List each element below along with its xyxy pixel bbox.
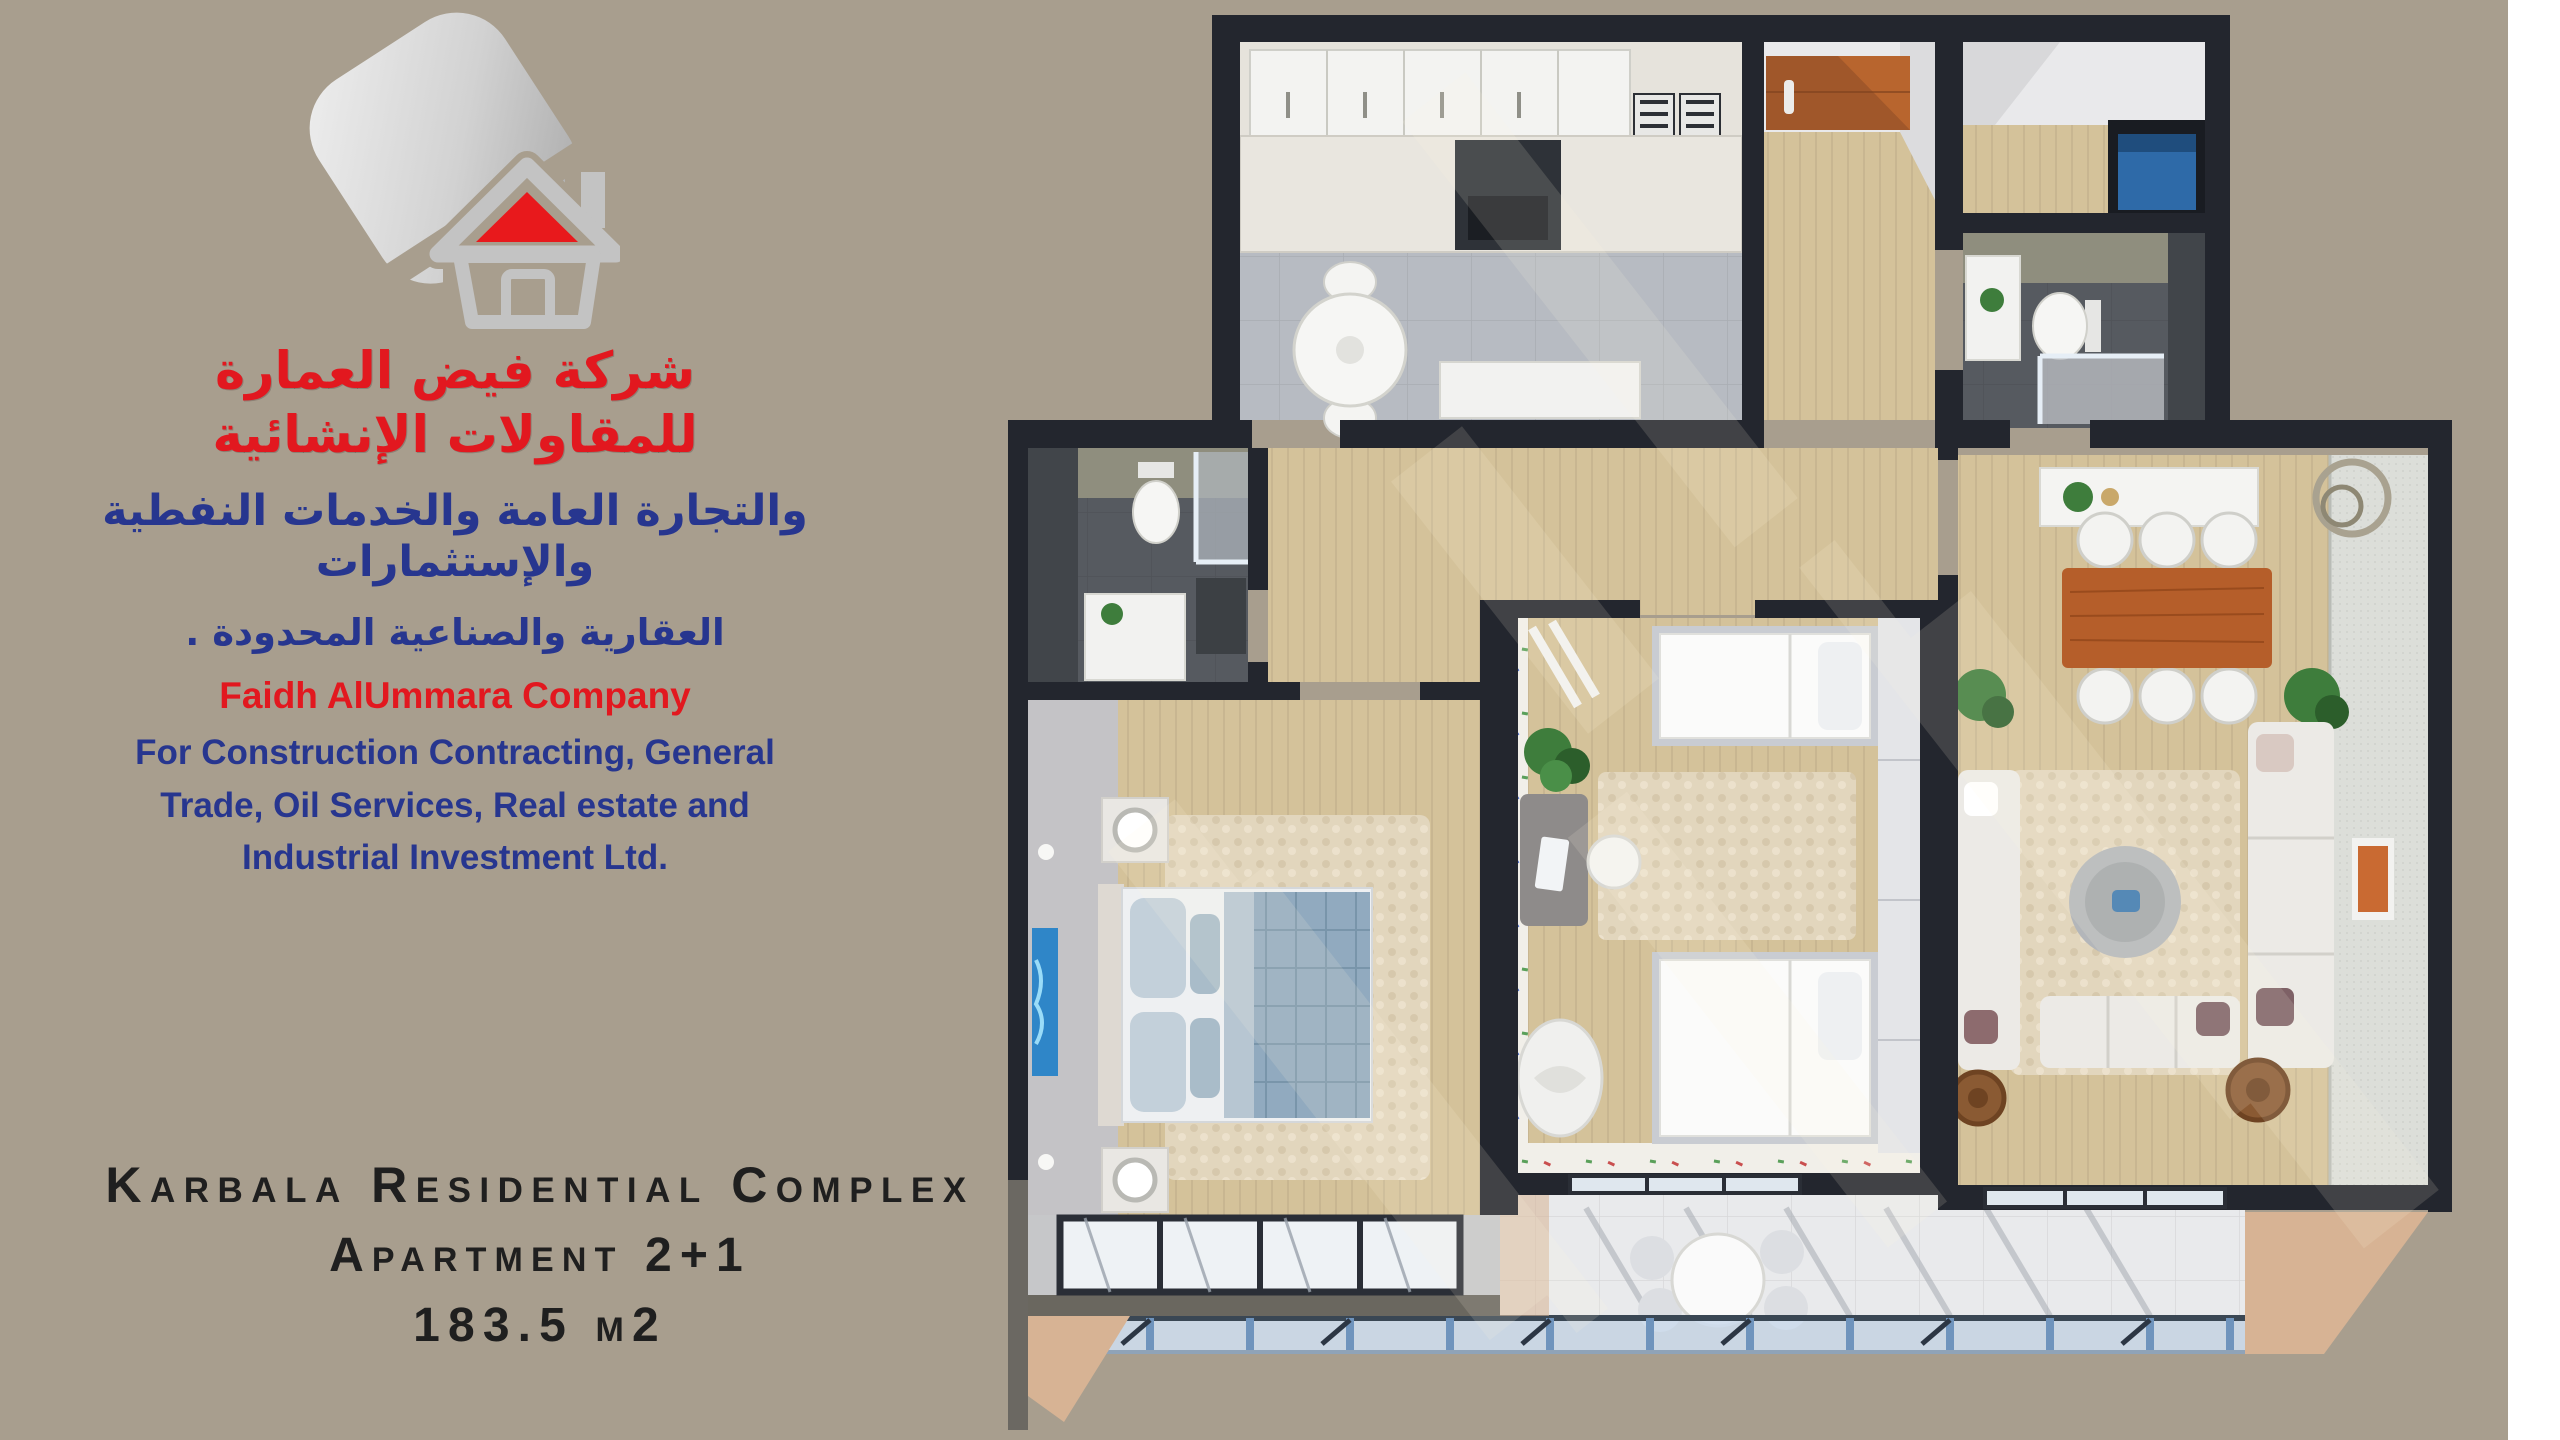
project-area: 183.5 m2 (55, 1302, 1025, 1350)
living-room-windows (1985, 1189, 2225, 1207)
toilet (2033, 293, 2101, 359)
image-edge-strip (2508, 0, 2560, 1440)
company-desc-line2: Trade, Oil Services, Real estate and (100, 780, 810, 833)
project-title: Karbala Residential Complex (55, 1160, 1025, 1210)
company-name-arabic: شركة فيض العمارة للمقاولات الإنشائية (100, 340, 810, 468)
kids-room-windows (1570, 1176, 1800, 1193)
company-name-english: Faidh AlUmmara Company (100, 675, 810, 717)
room-main-bathroom (1028, 448, 1248, 682)
wall-sconce (1038, 844, 1054, 860)
project-subtitle: Apartment 2+1 (55, 1232, 1025, 1280)
room-entry-hall (1764, 42, 1935, 420)
company-activity-arabic-2: العقارية والصناعية المحدودة . (100, 611, 810, 655)
company-text-block: شركة فيض العمارة للمقاولات الإنشائية وال… (100, 340, 810, 885)
dining-set (2062, 513, 2272, 723)
company-logo (280, 2, 620, 332)
project-title-block: Karbala Residential Complex Apartment 2+… (55, 1160, 1025, 1350)
shower (2040, 356, 2164, 424)
bath-mat (1196, 578, 1246, 654)
room-storage-closet (1963, 42, 2205, 213)
leaning-art (2352, 838, 2394, 920)
master-bedroom-windows (1060, 1218, 1460, 1292)
nightstand-bottom (1102, 1148, 1168, 1212)
dining-table (2062, 568, 2272, 668)
company-desc-line3: Industrial Investment Ltd. (100, 832, 810, 885)
company-desc-line1: For Construction Contracting, General (100, 727, 810, 780)
vanity (1085, 594, 1185, 680)
faidh-alummara-house-logo (280, 2, 620, 332)
toilet (1133, 462, 1179, 543)
room-guest-bathroom (1963, 233, 2205, 428)
kids-bed-top (1652, 626, 1878, 746)
poster-canvas: شركة فيض العمارة للمقاولات الإنشائية وال… (0, 0, 2560, 1440)
company-activity-arabic: والتجارة العامة والخدمات النفطية والإستث… (100, 486, 810, 589)
shower (1196, 452, 1248, 562)
balcony-glass-railing (1060, 1316, 2245, 1354)
entry-door (1766, 56, 1910, 130)
bean-bag (1518, 1020, 1602, 1136)
wall-sconce (1038, 1154, 1054, 1170)
